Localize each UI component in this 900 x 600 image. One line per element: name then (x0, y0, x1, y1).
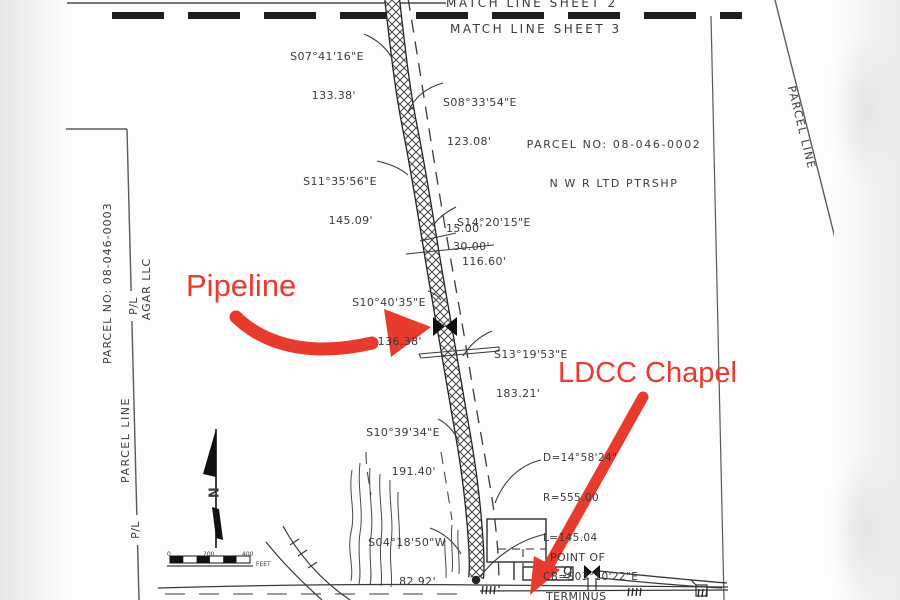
curve-delta: D=14°58'24" (543, 452, 663, 465)
pl-upper-label: P/L (127, 291, 141, 321)
bearing-callout: S10°39'34"E 191.40' (356, 400, 440, 504)
offset-15-label: 15.00' (446, 222, 492, 235)
pl-lower-label: P/L (129, 515, 143, 545)
terminus-line2: TERMINUS (546, 590, 636, 600)
scale-200-label: 200 (203, 548, 214, 561)
g-mark: g (562, 562, 574, 576)
match-line-sheet2-label: MATCH LINE SHEET 2 (446, 0, 610, 10)
scale-unit-label: FEET (256, 558, 271, 571)
bearing-text: S10°40'35"E (330, 296, 426, 309)
distance-text: 136.38' (330, 335, 426, 348)
parcel-0003-label: PARCEL NO: 08-046-0003 AGAR LLC (75, 214, 103, 364)
distance-text: 145.09' (303, 214, 377, 227)
bearing-text: S08°33'54"E (443, 96, 543, 109)
bearing-callout: S08°33'54"E 123.08' (443, 70, 543, 174)
scale-400-label: 400 (242, 548, 253, 561)
bearing-callout: S11°35'56"E 145.09' (303, 149, 377, 253)
parcel-0002-label: PARCEL NO: 08-046-0002 N W R LTD PTRSHP (520, 112, 708, 216)
bearing-text: S04°18'50"W (348, 536, 446, 549)
north-letter: N (209, 480, 224, 506)
bearing-callout: S10°40'35"E 136.38' (330, 270, 426, 374)
offset-30-label: 30.00' (453, 240, 503, 253)
distance-text: 133.38' (272, 89, 364, 102)
photo-blur-blob (836, 40, 900, 180)
parcel-0002-number: PARCEL NO: 08-046-0002 (520, 138, 708, 151)
distance-text: 82.92' (348, 575, 446, 588)
bearing-text: S11°35'56"E (303, 175, 377, 188)
bearing-text: S10°39'34"E (356, 426, 440, 439)
distance-text: 116.60' (457, 255, 537, 268)
scale-0-label: 0 (167, 548, 171, 561)
bearing-callout: S07°41'16"E 133.38' (272, 24, 364, 128)
chapel-annotation: LDCC Chapel (558, 357, 737, 390)
parcel-0002-owner: N W R LTD PTRSHP (520, 177, 708, 190)
match-line-sheet3-label: MATCH LINE SHEET 3 (450, 23, 620, 36)
right-boundary-vertical (711, 16, 724, 600)
parcel-line-left-label: PARCEL LINE (119, 369, 133, 511)
bearing-callout: S04°18'50"W 82.92' (348, 510, 446, 600)
distance-text: 123.08' (443, 135, 543, 148)
parcel-0003-number: PARCEL NO: 08-046-0003 (101, 214, 114, 364)
photo-blur-blob (834, 460, 900, 600)
distance-text: 191.40' (356, 465, 440, 478)
bearing-text: S07°41'16"E (272, 50, 364, 63)
parcel-0003-owner: AGAR LLC (140, 214, 153, 364)
road-curve-left (266, 526, 350, 600)
pipeline-terminus-dot (472, 576, 480, 584)
pipeline-annotation: Pipeline (186, 268, 296, 304)
crossing-bar (419, 347, 499, 358)
curve-radius: R=555.00 (543, 492, 663, 505)
survey-plat-map: MATCH LINE SHEET 2 MATCH LINE SHEET 3 PA… (0, 0, 900, 600)
